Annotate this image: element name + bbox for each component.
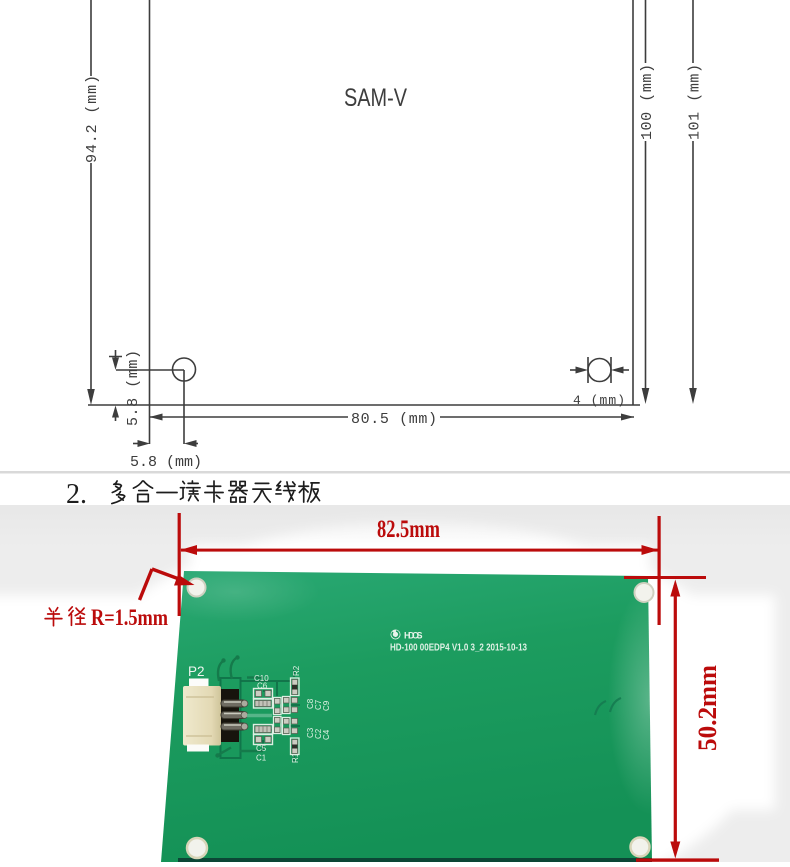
svg-text:HD-100 00EDP4 V1.0 3_2 2015-10: HD-100 00EDP4 V1.0 3_2 2015-10-13 <box>390 643 527 654</box>
svg-text:P2: P2 <box>188 664 205 679</box>
svg-text:82.5mm: 82.5mm <box>377 516 440 543</box>
svg-text:C1: C1 <box>256 754 267 763</box>
svg-text:SAM-V: SAM-V <box>344 84 407 112</box>
svg-text:C5: C5 <box>256 744 267 753</box>
svg-text:5.8 (mm): 5.8 (mm) <box>130 454 202 471</box>
svg-text:101 (mm): 101 (mm) <box>687 64 704 140</box>
svg-text:5.8 (mm): 5.8 (mm) <box>125 350 142 426</box>
svg-text:R2: R2 <box>292 665 301 676</box>
svg-text:HDOS: HDOS <box>404 631 423 641</box>
svg-text:C4: C4 <box>322 729 331 740</box>
svg-text:C9: C9 <box>322 700 331 711</box>
svg-text:80.5 (mm): 80.5 (mm) <box>351 411 437 428</box>
svg-text:94.2 (mm): 94.2 (mm) <box>84 75 101 163</box>
svg-text:100 (mm): 100 (mm) <box>639 64 656 140</box>
svg-text:R=1.5mm: R=1.5mm <box>91 605 168 630</box>
svg-text:50.2mm: 50.2mm <box>693 665 722 751</box>
svg-text:4 (mm): 4 (mm) <box>573 393 625 408</box>
